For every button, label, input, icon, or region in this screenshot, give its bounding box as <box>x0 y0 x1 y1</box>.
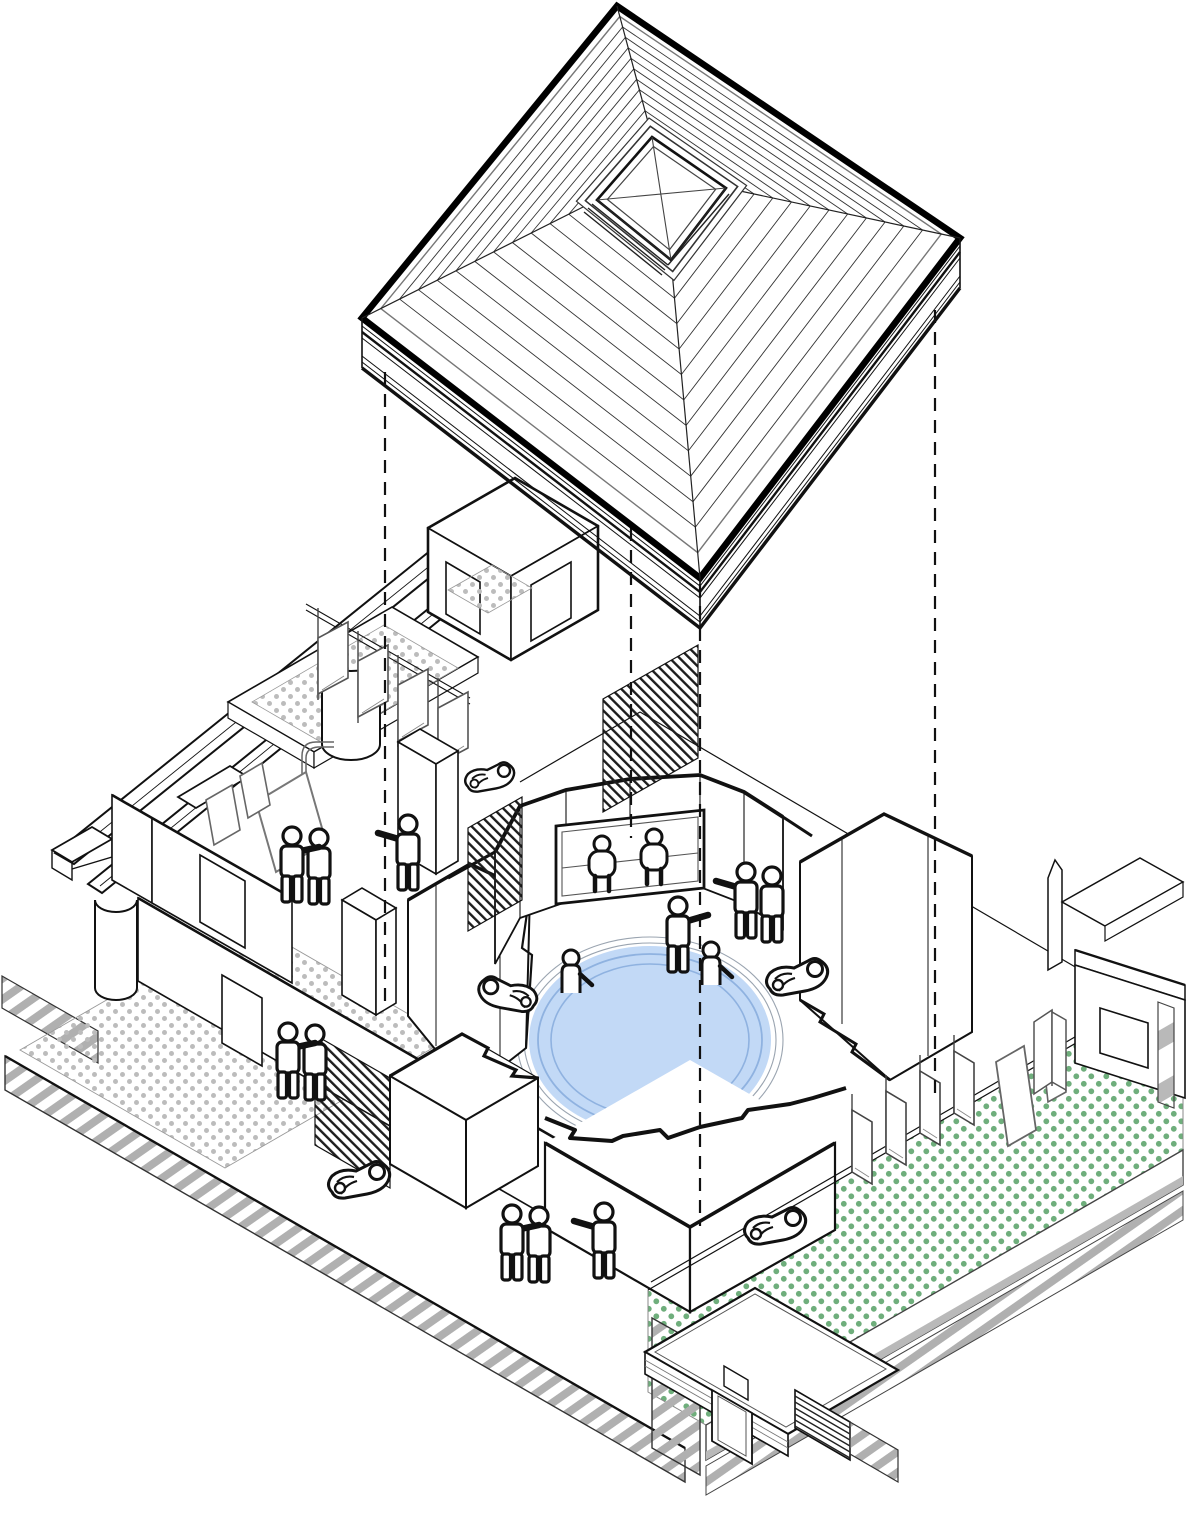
axonometric-diagram <box>0 0 1187 1536</box>
open-casement <box>920 1055 940 1145</box>
northeast-corner-room <box>1034 858 1185 1108</box>
porch-section-wall <box>850 1422 898 1482</box>
open-casement-leaf <box>1034 1010 1052 1094</box>
corner-post-banded <box>1158 1002 1174 1108</box>
open-casement-leaf <box>1052 1012 1066 1090</box>
changing-block-east <box>800 814 972 1080</box>
pair-south <box>501 1205 550 1282</box>
open-casement <box>852 1094 872 1184</box>
column-cylinder <box>95 900 137 1000</box>
roof-outline <box>362 6 960 578</box>
wall-sliver <box>1048 860 1062 970</box>
open-casement <box>954 1035 974 1125</box>
stair-tower <box>428 478 598 660</box>
wall-return <box>783 817 812 836</box>
pair-east-stander <box>761 867 783 942</box>
open-casement <box>886 1075 906 1165</box>
lounger-top <box>465 762 514 791</box>
